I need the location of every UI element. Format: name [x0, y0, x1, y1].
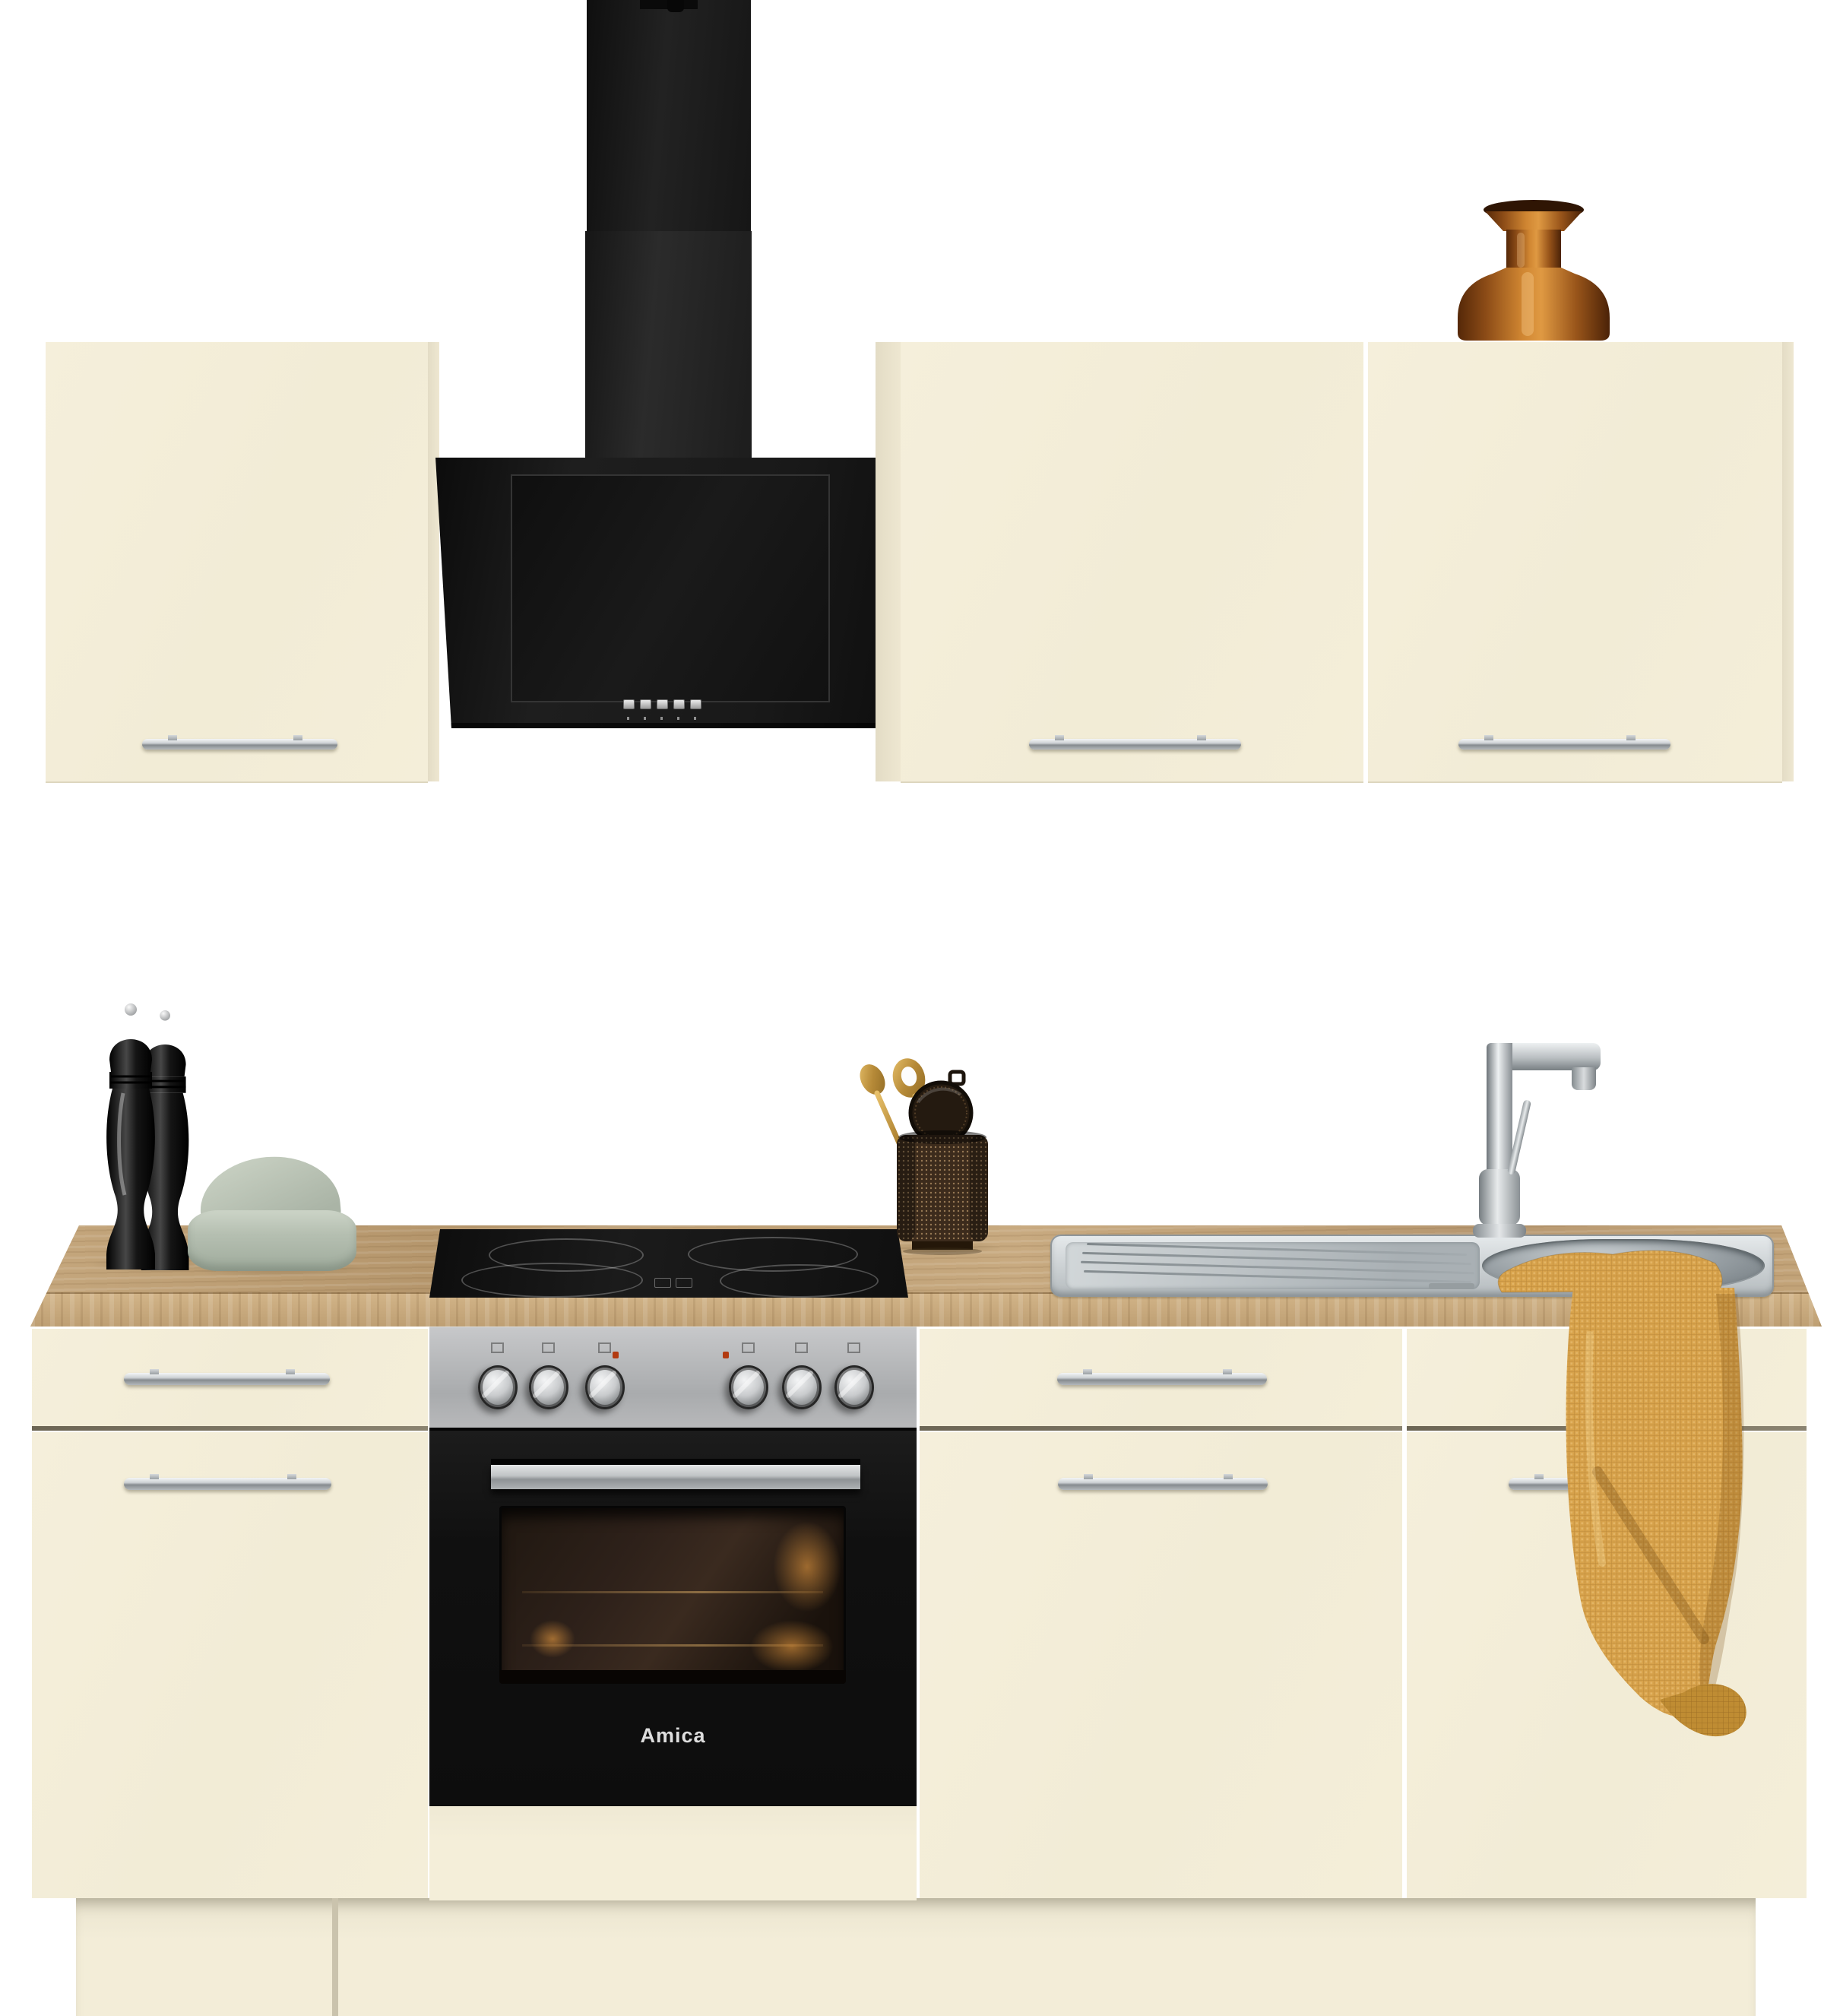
- oven-glow: [773, 1521, 841, 1612]
- oven-glow: [750, 1620, 834, 1673]
- oven-knob: [478, 1365, 518, 1409]
- knob-icon: [598, 1342, 611, 1353]
- towel-fold-on-sink: [1498, 1250, 1722, 1292]
- hood-button-label-dot: [677, 717, 679, 720]
- wall-cabinet-middle-side: [876, 342, 901, 781]
- drawer-gap: [32, 1426, 428, 1431]
- kitchen-towel: [1484, 1244, 1810, 1768]
- utensil-cup: [897, 1130, 988, 1255]
- hood-button-label-dot: [627, 717, 629, 720]
- wall-cabinet-right-side: [1782, 342, 1794, 781]
- wall-cabinet-left: [46, 342, 428, 783]
- hood-button-label-dot: [694, 717, 696, 720]
- plinth-seam: [332, 1898, 338, 2016]
- oven-door-handle: [491, 1465, 860, 1489]
- hood-button-icon: [623, 699, 635, 709]
- wall-cabinet-left-side: [428, 342, 439, 781]
- hood-button-icon: [690, 699, 701, 709]
- oven-window-bottom: [499, 1670, 846, 1684]
- hood-chimney-upper: [587, 0, 751, 231]
- base-middle-drawer-handle: [1057, 1373, 1267, 1385]
- vase-neck-highlight: [1517, 233, 1525, 268]
- wall-cabinet-right: [1368, 342, 1782, 783]
- knob-icon: [542, 1342, 555, 1353]
- base-cabinet-left-door: [32, 1432, 428, 1898]
- hood-button-icon: [640, 699, 651, 709]
- hob-control-mark: [654, 1278, 671, 1288]
- base-cabinet-middle-door: [920, 1432, 1402, 1898]
- wall-cabinet-middle-handle: [1029, 739, 1241, 750]
- sink-drainboard: [1066, 1242, 1480, 1289]
- oven-knob: [585, 1365, 625, 1409]
- hood-bottom-shadow: [445, 723, 889, 728]
- kitchen-product-photo: Amica: [0, 0, 1824, 2016]
- range-hood-body: [429, 458, 904, 728]
- knob-icon: [847, 1342, 860, 1353]
- oven-knob: [529, 1365, 568, 1409]
- oven-base-strip: [429, 1803, 917, 1900]
- base-left-drawer-handle: [124, 1373, 330, 1385]
- burner-ring: [720, 1264, 879, 1298]
- pepper-mill-front: [106, 1003, 155, 1270]
- storage-box: [188, 1210, 356, 1271]
- knob-icon: [742, 1342, 755, 1353]
- hood-button-label-dot: [644, 717, 646, 720]
- hob-control-mark: [676, 1278, 692, 1288]
- oven-glow: [530, 1620, 575, 1658]
- vase-highlight: [1522, 272, 1534, 336]
- oven-knob: [782, 1365, 822, 1409]
- base-left-door-handle: [124, 1478, 331, 1490]
- vase-neck: [1506, 230, 1561, 269]
- oven-indicator-dot: [723, 1352, 729, 1358]
- wall-cabinet-right-handle: [1458, 739, 1670, 750]
- wall-cabinet-middle: [901, 342, 1363, 783]
- drawer-gap: [920, 1426, 1402, 1431]
- hood-glass-panel: [511, 474, 830, 702]
- oven-door: Amica: [429, 1428, 917, 1806]
- oven-knob: [834, 1365, 874, 1409]
- faucet-mixer-body: [1479, 1169, 1520, 1225]
- hood-chimney-lower: [585, 231, 752, 459]
- faucet-spout-tip: [1572, 1067, 1596, 1090]
- oven-brand-logo: Amica: [429, 1724, 917, 1748]
- base-middle-door-handle: [1058, 1478, 1268, 1490]
- knob-icon: [491, 1342, 504, 1353]
- hood-button-label-dot: [660, 717, 663, 720]
- hood-button-icon: [657, 699, 668, 709]
- oven-knob: [729, 1365, 768, 1409]
- utensil-cup-group: [847, 1058, 999, 1256]
- hood-button-icon: [673, 699, 685, 709]
- vase-flare: [1485, 211, 1582, 231]
- ceramic-cooktop: [429, 1229, 908, 1298]
- knob-icon: [795, 1342, 808, 1353]
- faucet-base: [1473, 1224, 1526, 1238]
- burner-ring: [461, 1263, 643, 1298]
- hood-chimney-mount: [667, 0, 684, 12]
- wall-cabinet-left-handle: [142, 739, 337, 750]
- amber-glass-vase: [1442, 187, 1625, 343]
- plinth: [76, 1898, 1756, 2016]
- oven-indicator-dot: [613, 1352, 619, 1358]
- oven-window: [499, 1506, 846, 1684]
- sink-overflow: [1429, 1283, 1474, 1289]
